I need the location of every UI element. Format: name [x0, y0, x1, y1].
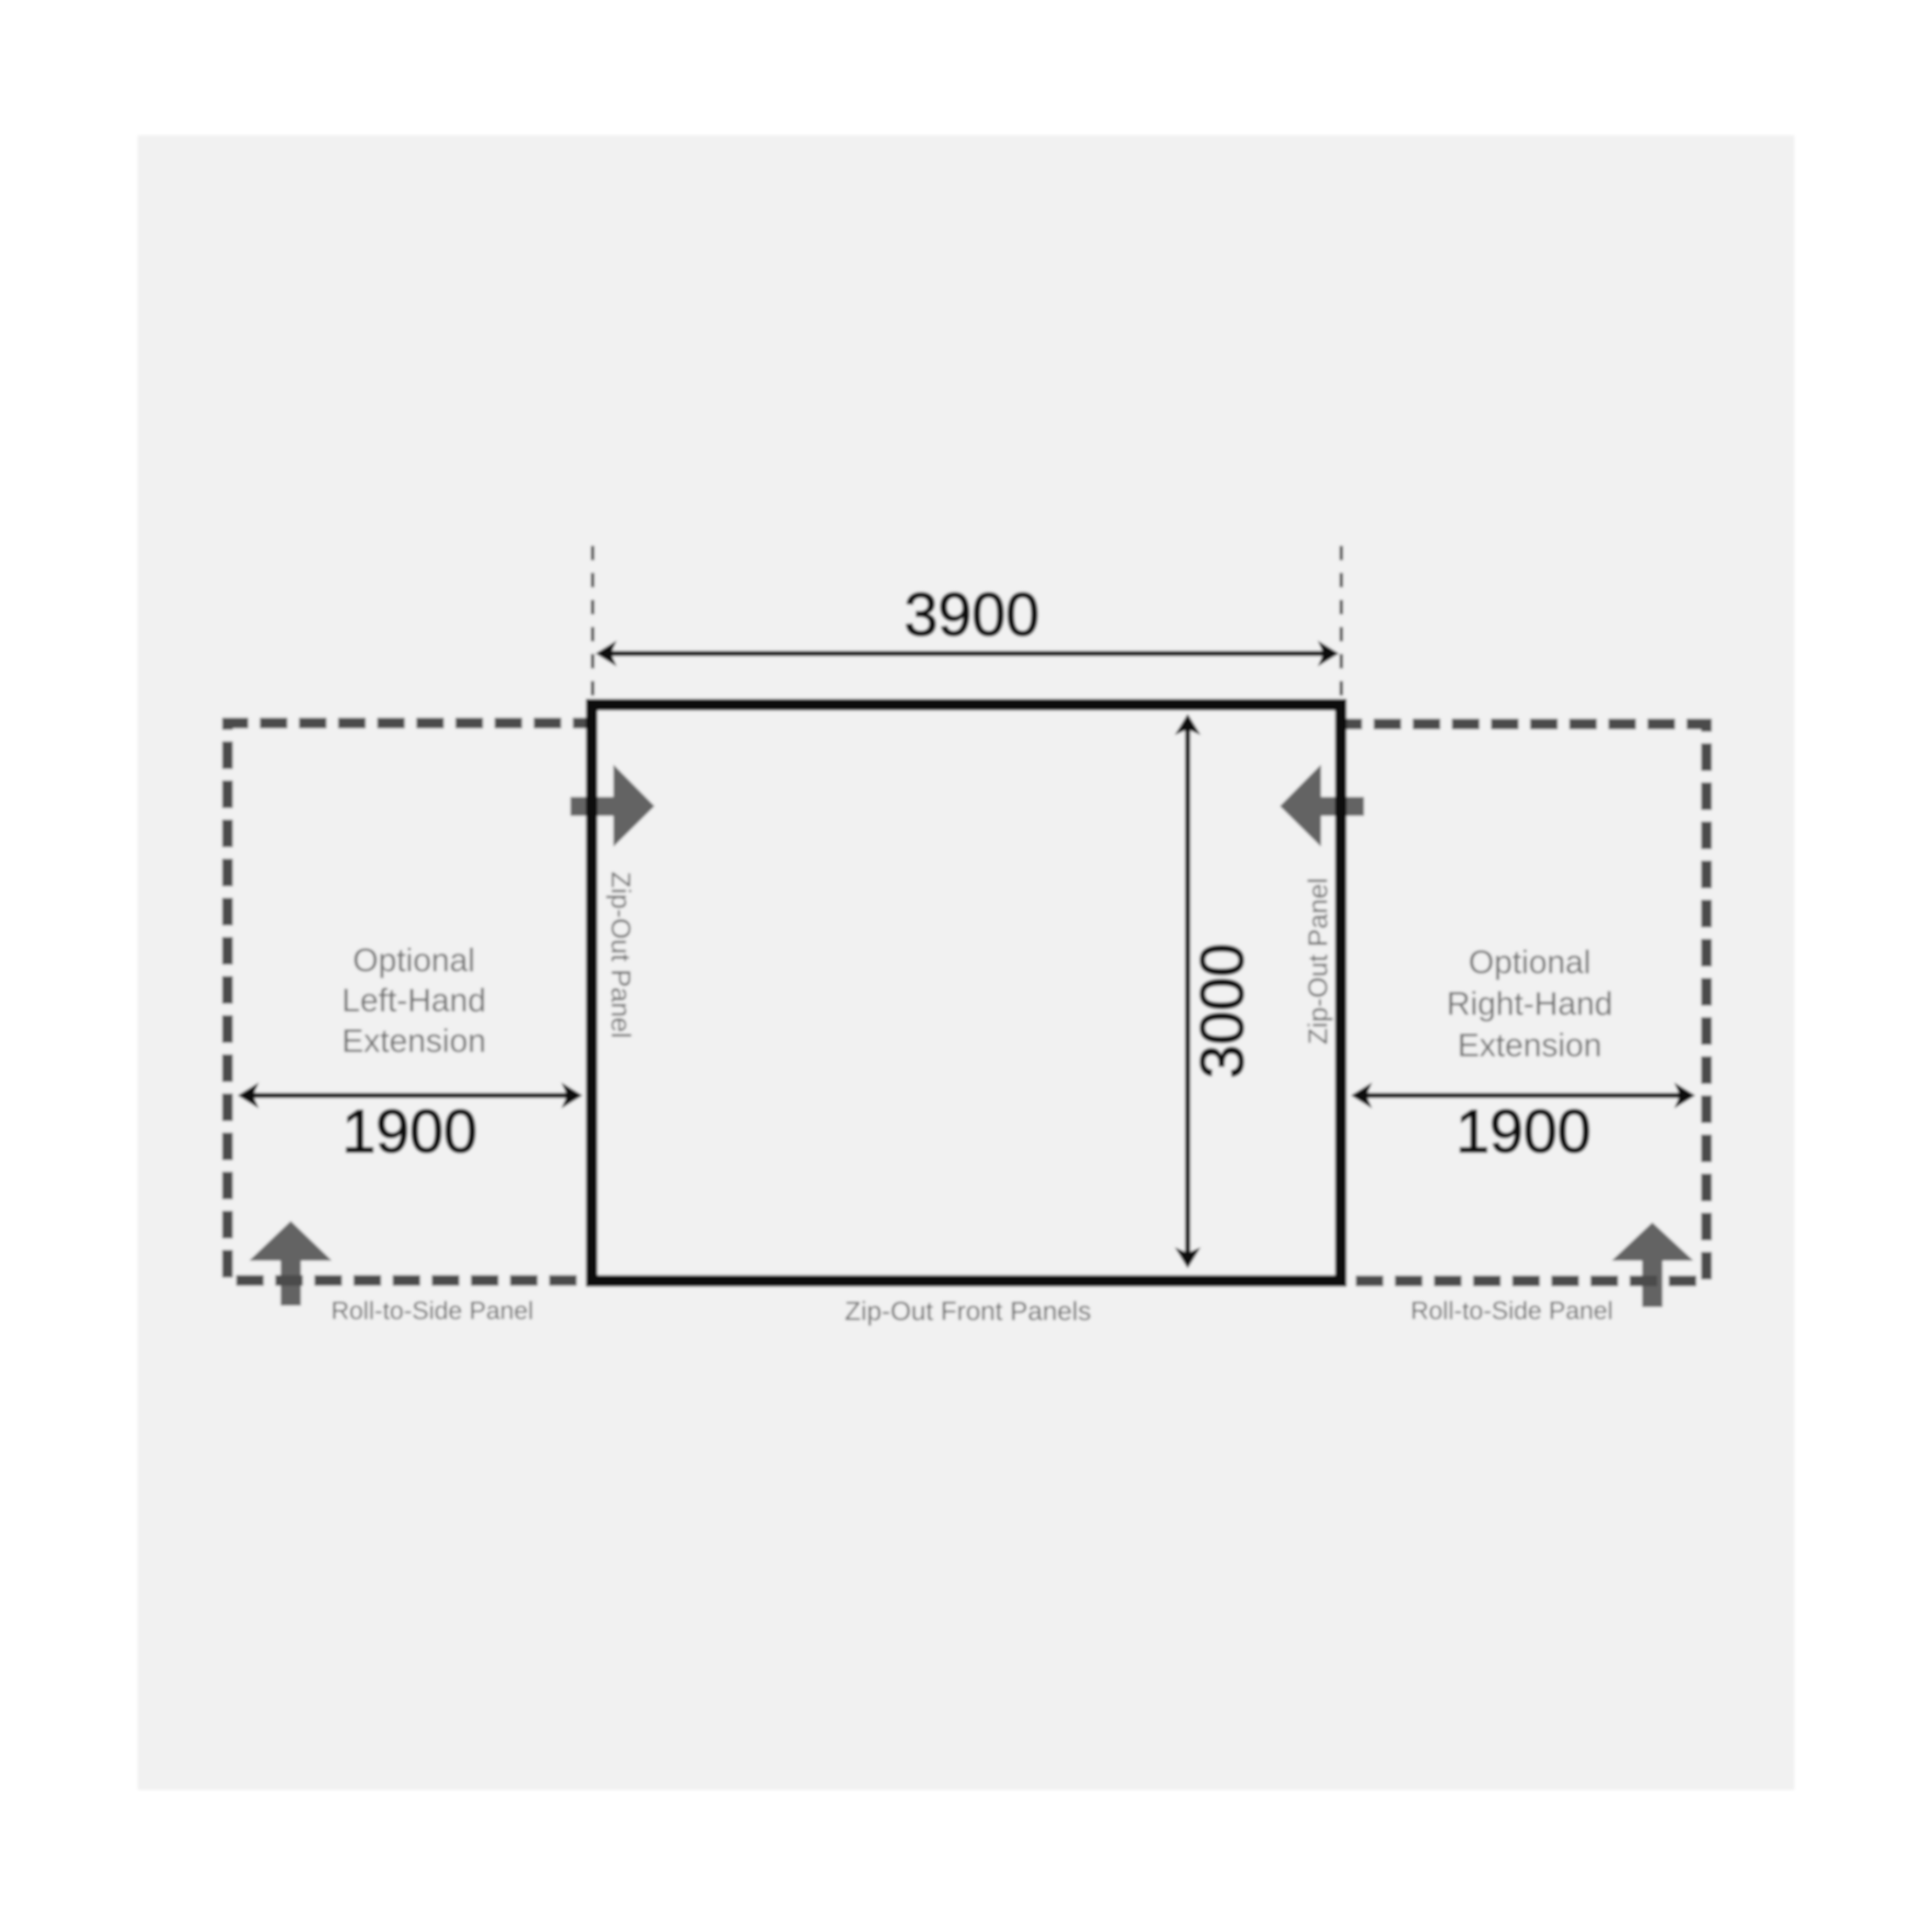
svg-text:Zip-Out Front Panels: Zip-Out Front Panels [845, 1296, 1091, 1326]
svg-text:Zip-Out Panel: Zip-Out Panel [606, 871, 637, 1038]
svg-text:Optional: Optional [353, 942, 475, 979]
svg-text:Extension: Extension [1458, 1027, 1602, 1064]
svg-text:3000: 3000 [1188, 943, 1256, 1079]
svg-text:Left-Hand: Left-Hand [342, 982, 486, 1019]
svg-text:1900: 1900 [1456, 1097, 1591, 1165]
svg-text:Right-Hand: Right-Hand [1447, 985, 1613, 1022]
svg-text:Extension: Extension [342, 1023, 486, 1059]
svg-text:1900: 1900 [342, 1097, 477, 1165]
svg-text:Roll-to-Side Panel: Roll-to-Side Panel [1410, 1297, 1613, 1325]
svg-text:Roll-to-Side Panel: Roll-to-Side Panel [331, 1297, 533, 1325]
svg-text:3900: 3900 [904, 581, 1039, 649]
svg-text:Zip-Out Panel: Zip-Out Panel [1303, 878, 1333, 1045]
svg-text:Optional: Optional [1468, 944, 1591, 980]
